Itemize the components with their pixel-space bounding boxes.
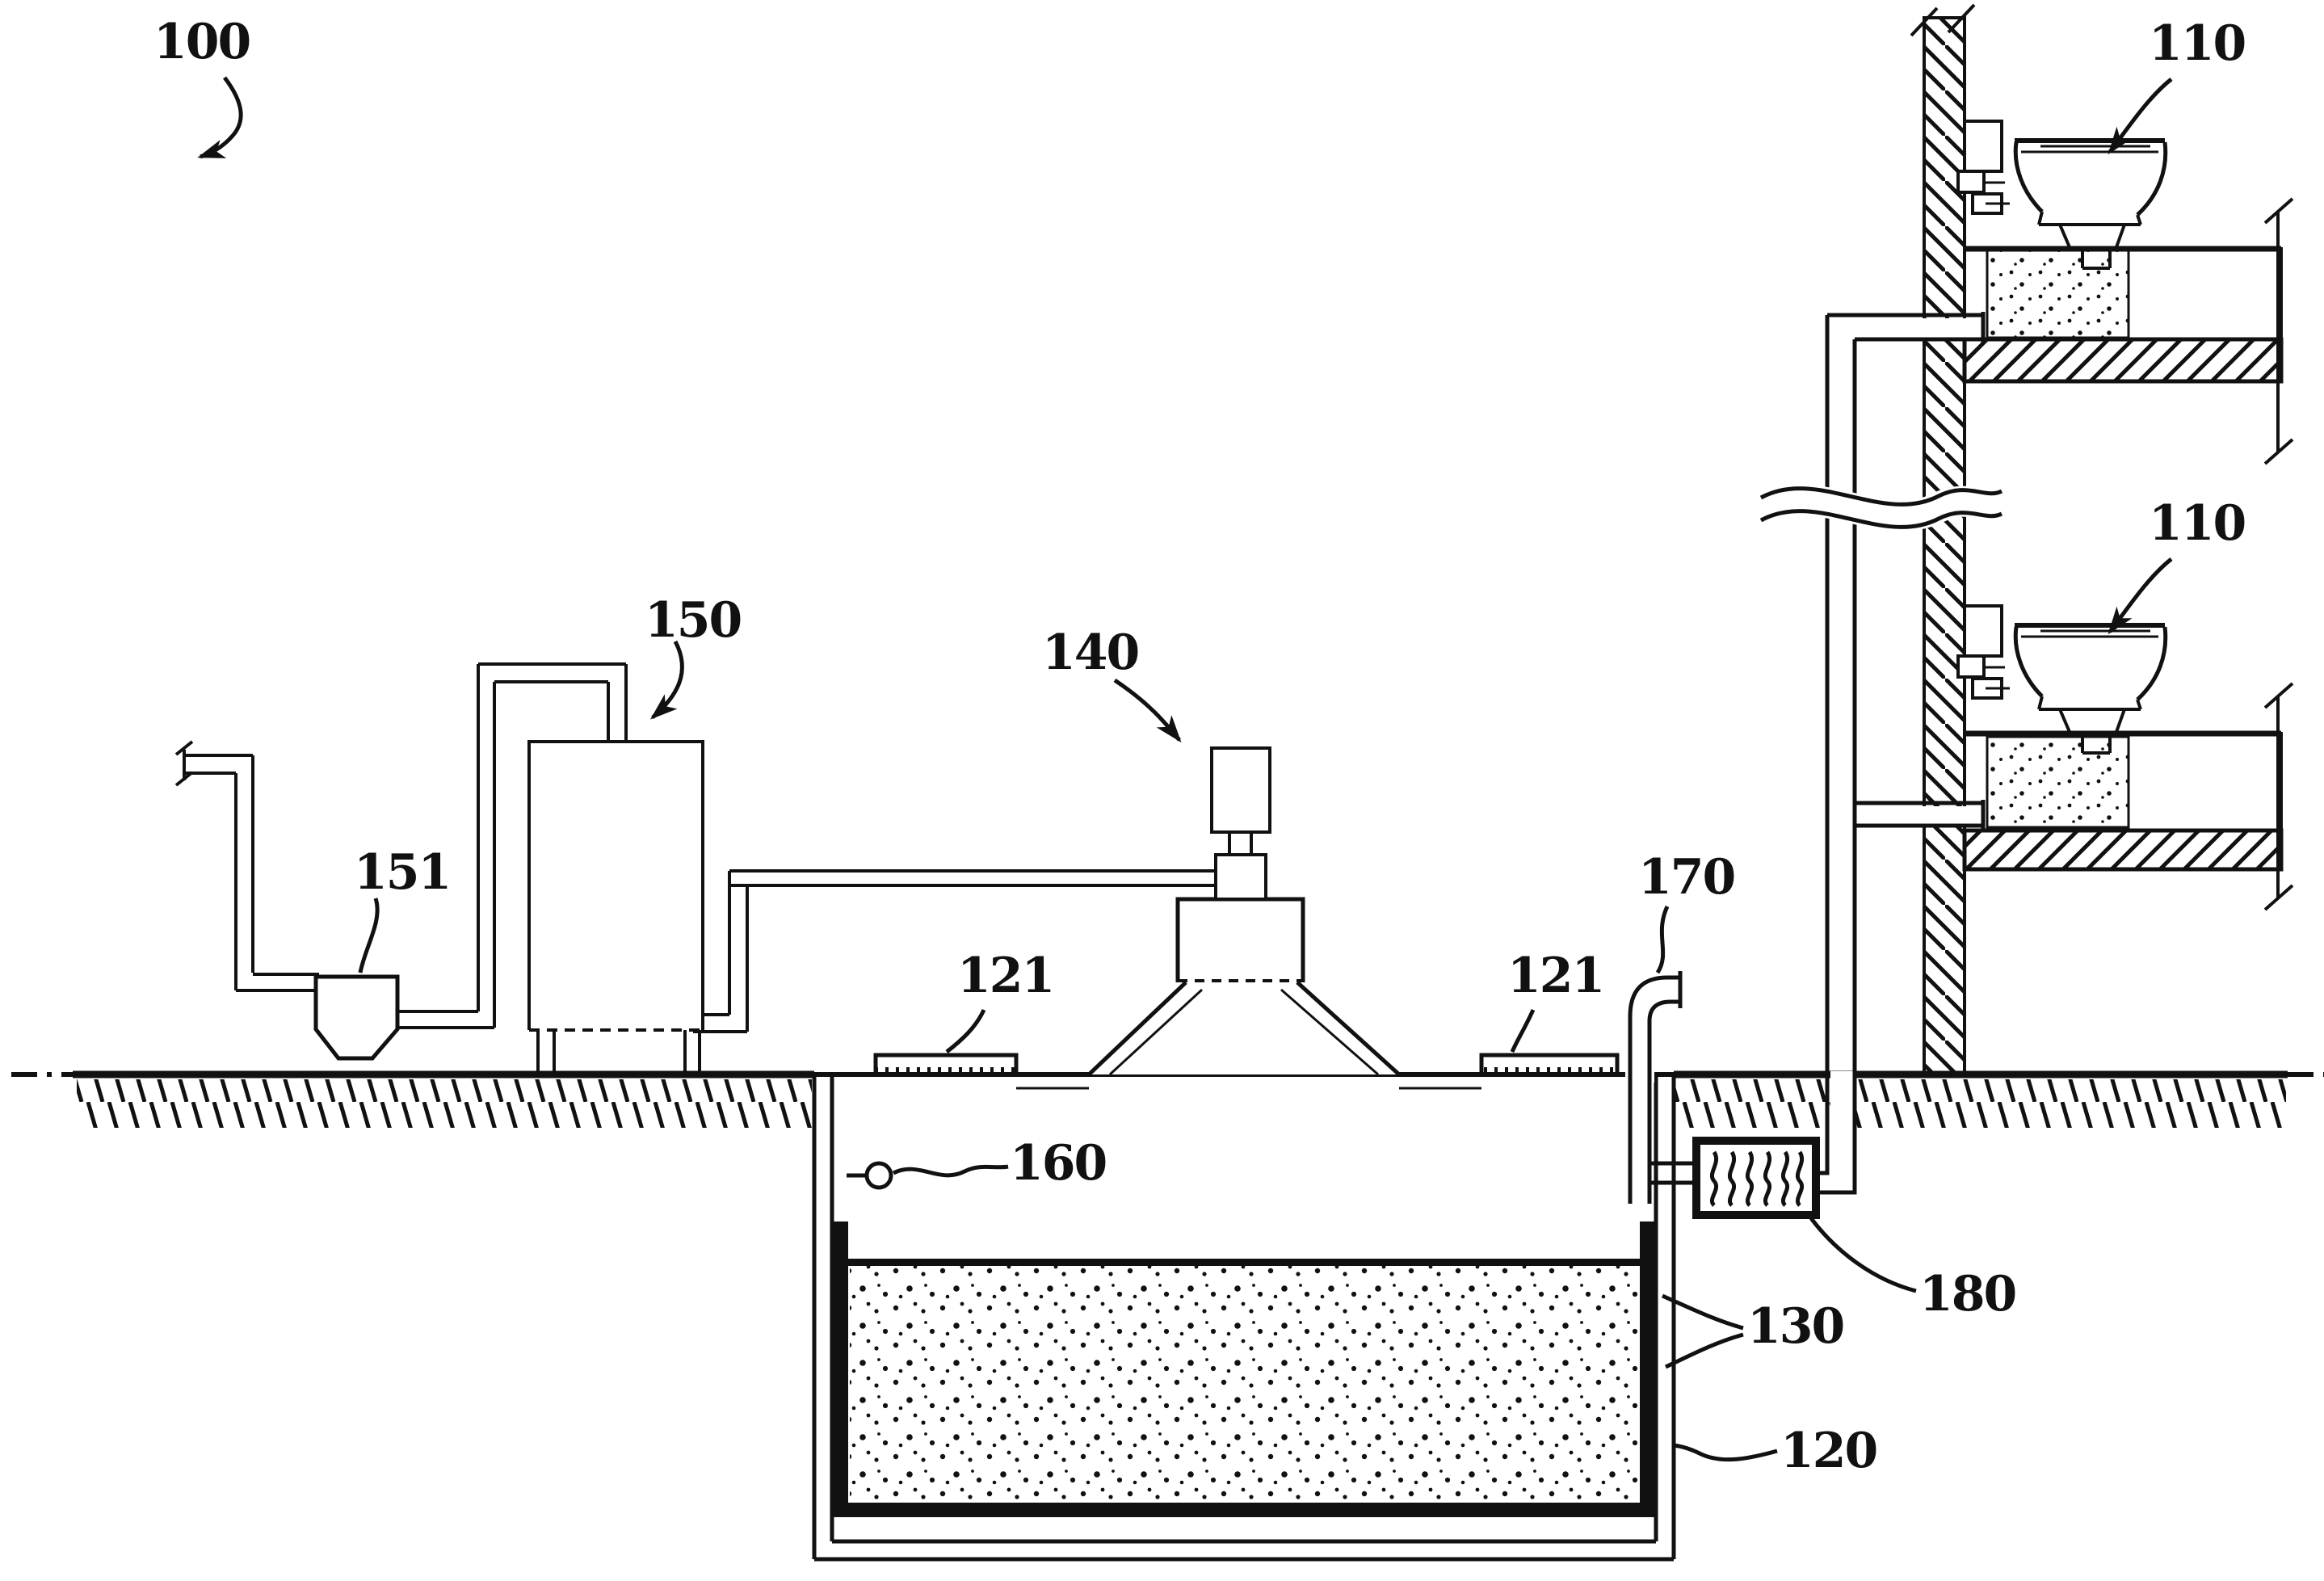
leader-120 <box>1674 1445 1777 1460</box>
leader-arrow-150 <box>653 641 682 717</box>
hopper-outlet-pipe <box>396 1011 494 1028</box>
ref-label-121-right: 121 <box>1507 952 1603 1000</box>
access-port-left <box>876 1055 1016 1074</box>
ref-label-170: 170 <box>1638 853 1734 902</box>
ref-label-151: 151 <box>354 848 450 897</box>
leader-160 <box>893 1167 1008 1175</box>
motor <box>1212 748 1270 832</box>
foundation-block-lower <box>1987 737 2129 827</box>
feed-system <box>176 664 1216 1073</box>
slab-lower <box>1965 830 2281 869</box>
ref-label-160: 160 <box>1010 1139 1106 1188</box>
ref-label-180: 180 <box>1919 1270 2015 1318</box>
leader-arrow-110-lower <box>2110 559 2171 632</box>
diagram-canvas <box>0 0 2324 1581</box>
ref-label-121-left: 121 <box>957 952 1053 1000</box>
agitator-housing <box>1178 899 1303 982</box>
gearbox <box>1216 855 1266 899</box>
drive-shaft <box>1229 832 1251 855</box>
ref-label-150: 150 <box>645 596 741 645</box>
leader-arrow-100 <box>200 78 241 157</box>
leader-180 <box>1811 1218 1916 1291</box>
access-port-right <box>1481 1055 1617 1074</box>
inlet-pipe <box>184 755 319 990</box>
hopper <box>316 977 397 1058</box>
leader-121-left <box>947 1010 984 1052</box>
leader-arrow-140 <box>1115 680 1179 740</box>
feed-pipe-to-motor <box>693 871 1216 1032</box>
trap-device <box>1696 1141 1816 1215</box>
soil-stack <box>1816 315 1855 1192</box>
agitator-assembly <box>1089 748 1399 1074</box>
floor-lower <box>1965 683 2292 910</box>
foundation-block-upper <box>1987 250 2129 338</box>
ground <box>11 1074 2324 1128</box>
ref-label-130: 130 <box>1747 1302 1843 1351</box>
ref-label-110-lower: 110 <box>2149 499 2245 548</box>
ref-label-110-upper: 110 <box>2149 19 2245 68</box>
section-line-lower <box>2265 683 2292 910</box>
aggregate-bed <box>845 1259 1643 1503</box>
section-line-upper <box>2265 199 2292 464</box>
floor-upper <box>1965 199 2292 464</box>
leader-151 <box>360 898 377 973</box>
leader-121-right <box>1512 1010 1533 1052</box>
slab-upper <box>1965 339 2281 381</box>
ref-label-100: 100 <box>153 18 250 66</box>
patent-figure: 100 110 110 150 151 140 121 121 170 160 … <box>0 0 2324 1581</box>
ref-label-120: 120 <box>1780 1427 1876 1475</box>
leader-170 <box>1658 906 1667 973</box>
sensor-160 <box>847 1163 891 1188</box>
treatment-box-legs <box>538 1030 700 1073</box>
treatment-box <box>529 742 703 1030</box>
storage-tank <box>814 1055 1674 1559</box>
ref-label-140: 140 <box>1042 629 1138 677</box>
inlet-pipe-end <box>176 742 192 785</box>
